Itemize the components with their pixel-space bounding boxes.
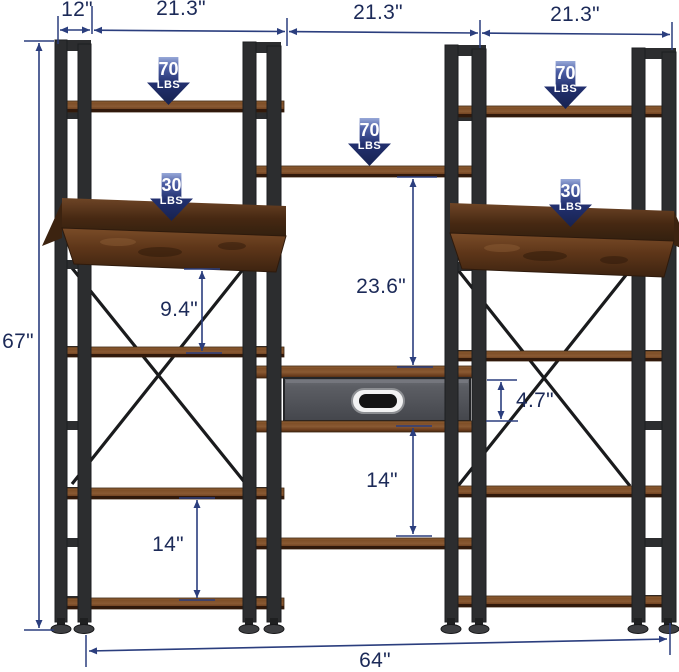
- dim-label-width-right: 21.3": [539, 4, 611, 26]
- dim-label-drawer-height: 4.7": [516, 390, 572, 412]
- dim-label-width-center: 21.3": [342, 2, 414, 24]
- center-upper-gap-dimension-line: [397, 177, 437, 367]
- dim-label-center-upper-gap: 23.6": [332, 276, 406, 298]
- dim-label-left-bin-gap: 9.4": [142, 299, 198, 321]
- dim-label-center-lower-gap: 14": [356, 470, 408, 492]
- leveling-feet: [51, 618, 679, 634]
- bookshelf-dimension-diagram: 70 LBS 70 LBS 70 LBS 30 LBS 30 LBS 12" 2…: [0, 0, 679, 672]
- dim-label-width-left: 21.3": [145, 0, 217, 20]
- dim-label-height: 67": [0, 331, 36, 353]
- bookshelf-illustration: [0, 0, 679, 672]
- dim-label-total-width: 64": [344, 650, 406, 672]
- dim-label-depth: 12": [52, 0, 102, 21]
- dim-label-left-lower-gap: 14": [142, 534, 194, 556]
